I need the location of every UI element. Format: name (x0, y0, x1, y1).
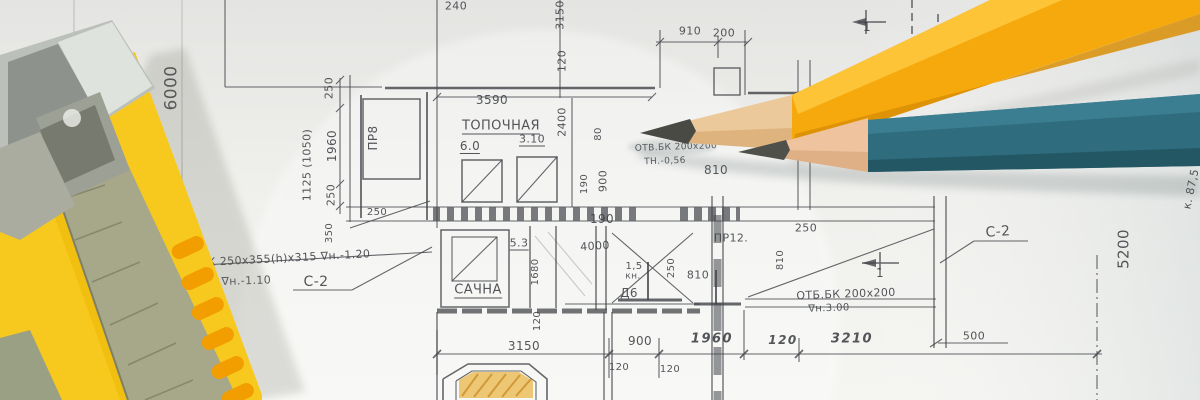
foreground-objects (0, 0, 1200, 400)
shadows (128, 48, 1200, 400)
photo-blueprint-scene: 600025019601125 (1050)250ПР82503503590ТО… (0, 0, 1200, 400)
